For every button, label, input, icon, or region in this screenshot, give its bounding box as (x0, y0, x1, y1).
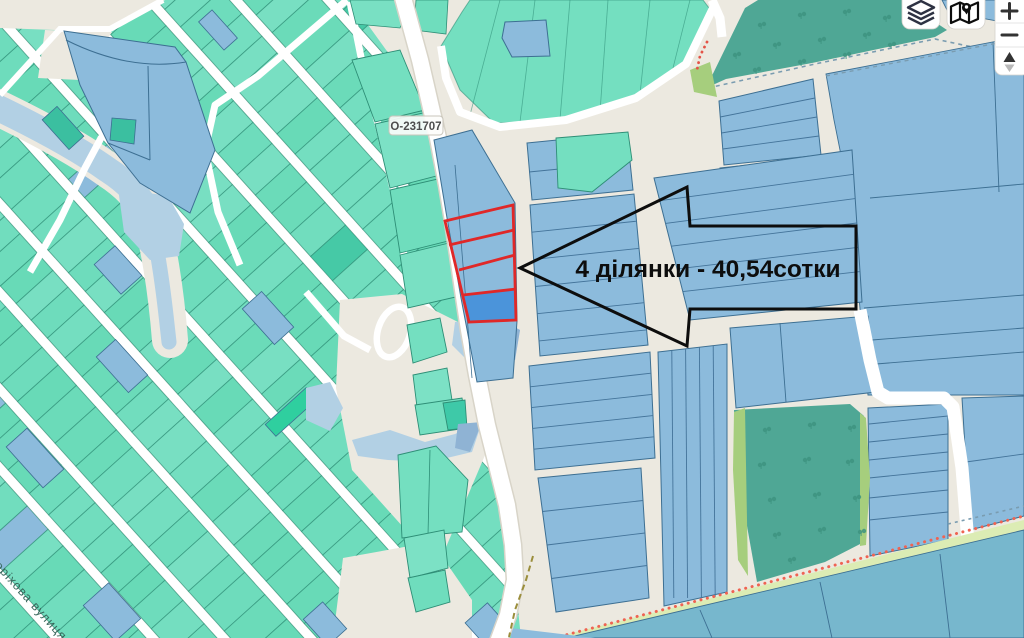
svg-text:О-231707: О-231707 (390, 121, 441, 133)
svg-text:4 ділянки - 40,54сотки: 4 ділянки - 40,54сотки (575, 256, 840, 283)
